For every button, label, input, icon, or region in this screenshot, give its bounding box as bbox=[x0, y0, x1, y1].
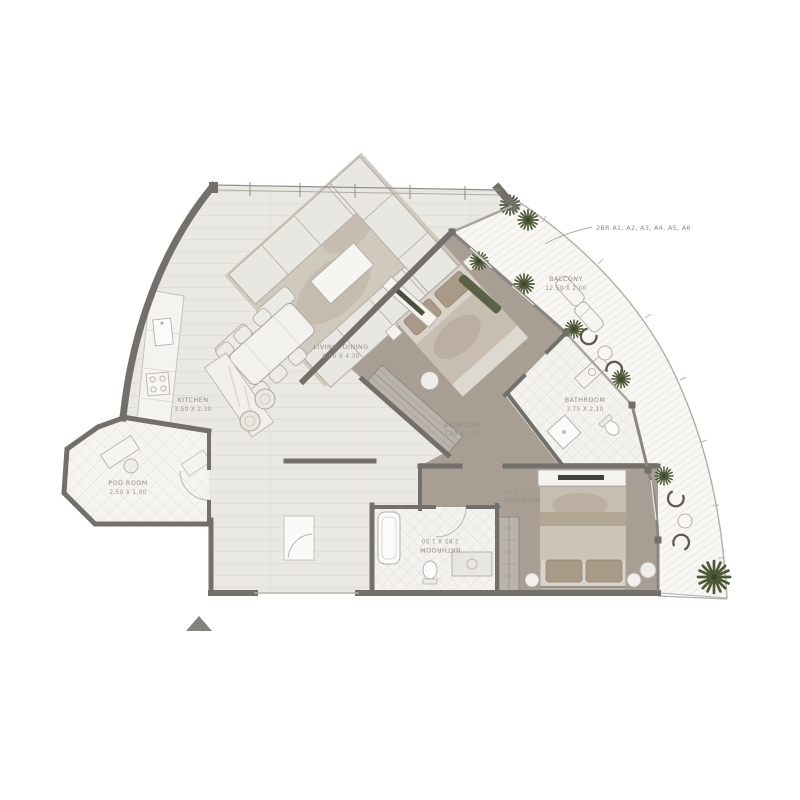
label-bedroom2-name: BEDROOM bbox=[504, 496, 541, 504]
bar-stool bbox=[255, 389, 275, 409]
label-pod-name: POD ROOM bbox=[108, 479, 147, 487]
pillow bbox=[546, 560, 582, 582]
vanity bbox=[452, 552, 492, 576]
palm-tree-icon bbox=[698, 561, 730, 593]
bathtub bbox=[378, 512, 400, 564]
pillow bbox=[586, 560, 622, 582]
label-living-dims: 8.90 X 4.30 bbox=[322, 354, 359, 360]
kitchen-stove bbox=[146, 372, 170, 396]
label-bathroom1-name: BATHROOM bbox=[565, 396, 606, 404]
label-bedroom1-name: BEDROOM bbox=[444, 421, 481, 429]
callout-label: 2BR A1, A2, A3, A4, A5, A6 bbox=[596, 224, 691, 232]
label-living-name: LIVING/ DINING bbox=[313, 343, 368, 351]
label-pod-dims: 2.50 X 1.90 bbox=[109, 490, 146, 496]
toilet bbox=[423, 561, 437, 579]
label-kitchen-dims: 3.50 X 2.30 bbox=[174, 407, 211, 413]
nightstand bbox=[627, 573, 641, 587]
palm-tree-icon bbox=[518, 210, 538, 230]
floor-plan: BALCONY 12.50 X 2.00 LIVING/ DINING 8.90… bbox=[0, 0, 800, 800]
bar-stool bbox=[240, 411, 260, 431]
wall-cap bbox=[209, 182, 218, 193]
corner-chair bbox=[640, 562, 656, 578]
nightstand bbox=[525, 573, 539, 587]
entry-nook bbox=[284, 516, 314, 560]
kitchen-sink bbox=[153, 318, 174, 346]
label-bedroom2-dims: 3.70 X 3.00 bbox=[503, 487, 540, 493]
floor-plan-page: BALCONY 12.50 X 2.00 LIVING/ DINING 8.90… bbox=[0, 0, 800, 800]
label-bathroom2-dims: 2.85 X 1.50 bbox=[421, 537, 458, 543]
label-balcony-name: BALCONY bbox=[549, 275, 583, 283]
wardrobe bbox=[499, 517, 519, 591]
label-bedroom1-dims: 3.80 X 3.05 bbox=[443, 432, 480, 438]
label-balcony-dims: 12.50 X 2.00 bbox=[545, 286, 586, 292]
label-kitchen-name: KITCHEN bbox=[178, 396, 209, 404]
tv-console bbox=[538, 470, 626, 486]
balcony-table bbox=[678, 514, 692, 528]
balcony-table bbox=[598, 346, 612, 360]
label-bathroom1-dims: 3.75 X 2.10 bbox=[566, 407, 603, 413]
entry-marker-triangle bbox=[186, 616, 212, 631]
palm-tree-icon bbox=[655, 467, 673, 485]
pod-chair bbox=[124, 459, 138, 473]
label-bathroom2-name: BATHROOM bbox=[420, 546, 461, 554]
